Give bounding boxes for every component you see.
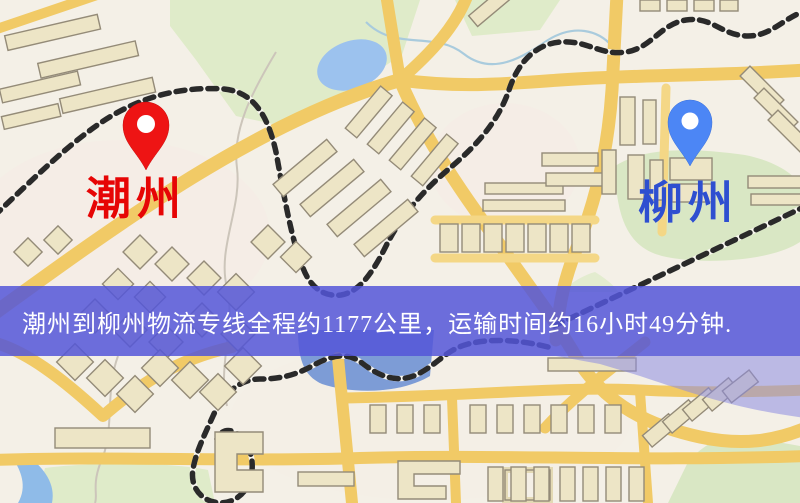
- origin-city-label: 潮州: [86, 177, 186, 222]
- map-screenshot: 潮州 柳州 潮州到柳州物流专线全程约1177公里，运输时间约16小时49分钟.: [0, 0, 800, 503]
- destination-city-label: 柳州: [638, 181, 738, 226]
- map-canvas: [0, 0, 800, 503]
- route-caption-band: 潮州到柳州物流专线全程约1177公里，运输时间约16小时49分钟.: [0, 286, 800, 356]
- destination-pin-hole: [682, 113, 699, 130]
- origin-pin-hole: [137, 115, 155, 133]
- route-caption-text: 潮州到柳州物流专线全程约1177公里，运输时间约16小时49分钟.: [22, 304, 732, 339]
